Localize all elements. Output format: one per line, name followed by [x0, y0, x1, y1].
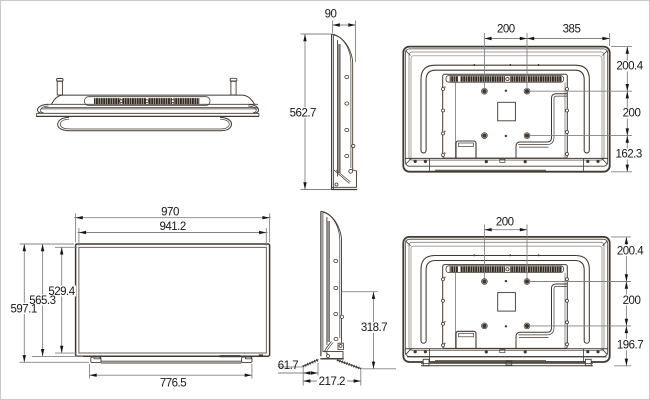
svg-text:385: 385 — [563, 23, 581, 35]
svg-text:941.2: 941.2 — [159, 221, 185, 233]
svg-text:562.7: 562.7 — [290, 107, 316, 119]
svg-text:529.4: 529.4 — [48, 286, 75, 298]
svg-text:217.2: 217.2 — [319, 376, 345, 388]
svg-text:776.5: 776.5 — [160, 378, 186, 390]
svg-text:200: 200 — [623, 108, 641, 120]
svg-text:196.7: 196.7 — [617, 339, 643, 351]
svg-text:318.7: 318.7 — [361, 322, 387, 334]
svg-text:90: 90 — [325, 9, 337, 21]
svg-text:200: 200 — [623, 295, 641, 307]
svg-text:162.3: 162.3 — [615, 149, 641, 161]
svg-text:61.7: 61.7 — [278, 360, 298, 372]
svg-text:970: 970 — [161, 207, 179, 219]
svg-text:200.4: 200.4 — [616, 61, 643, 73]
svg-text:200.4: 200.4 — [617, 245, 644, 257]
svg-text:200: 200 — [497, 23, 515, 35]
svg-text:200: 200 — [496, 216, 514, 228]
